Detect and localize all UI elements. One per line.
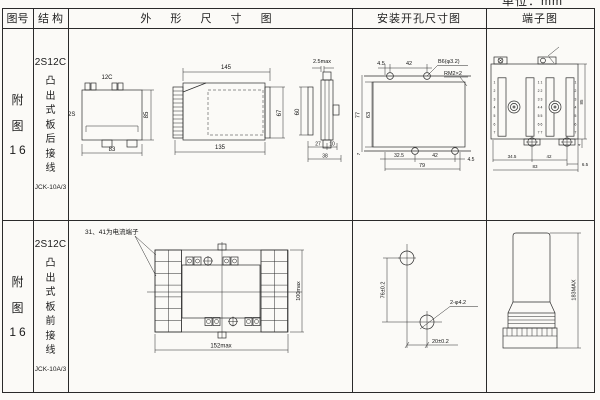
dimensions: 76±0.2 2-φ4.2 20±0.2: [381, 258, 479, 348]
structure-cell-row1: 2S12C 凸出式板后接线 JCK-10A/3: [33, 28, 68, 220]
install-drawing-front: 76±0.2 2-φ4.2 20±0.2: [352, 220, 486, 392]
dim-label: 7: [356, 152, 361, 155]
dim-label: 63: [366, 112, 372, 118]
cutout-plate: [364, 73, 471, 155]
outline-drawing-front: 31、41为电流端子 152max 100max: [68, 220, 352, 392]
hole-spec-label: 2-φ4.2: [450, 300, 466, 306]
dim-label: 135: [215, 145, 226, 151]
dim-label: 183MAX: [572, 279, 578, 300]
dim-label: 85: [144, 111, 150, 118]
row-number: 2 2: [538, 89, 543, 93]
row-number: 2: [575, 89, 577, 93]
row-number: 5: [494, 114, 496, 118]
row-number: 3 3: [538, 97, 543, 101]
holes: [382, 244, 442, 348]
row-number: 4 4: [538, 106, 543, 110]
header-structure: 结 构: [33, 8, 68, 28]
row-number: 1: [575, 81, 577, 85]
terminal-drawing-rear: 1 2 3 4 5 6 7 1 1 2 2 3 3 4 4 5 5 6 6 7 …: [486, 28, 594, 220]
mount-type: 凸出式板前接线: [45, 257, 57, 359]
dim-label: 42: [432, 153, 438, 159]
outline-drawing-rear: 12C 2S 85 83 145 135 67: [68, 28, 352, 220]
header-install: 安装开孔尺寸图: [352, 8, 486, 28]
dim-label: 4.5: [377, 61, 385, 67]
row-number: 6: [575, 122, 577, 126]
type-code: JCK-10A/3: [35, 366, 66, 373]
header-outline: 外 形 尺 寸 图: [68, 8, 352, 28]
fig-char: 图: [11, 299, 23, 316]
fig-char: 图: [11, 117, 23, 134]
dim-label: 152max: [210, 344, 231, 350]
dim-label: 145: [221, 65, 232, 71]
note: 31、41为电流端子: [85, 227, 156, 276]
type-code: JCK-10A/3: [35, 184, 66, 191]
row-number: 1: [494, 81, 496, 85]
dim-label: 42: [546, 154, 552, 159]
dim-label: 67: [277, 109, 283, 116]
dim-label: 2S: [68, 112, 75, 118]
fig-char: 附: [11, 273, 23, 290]
dim-label: 4: [578, 144, 582, 146]
dim-label: 20±0.2: [432, 339, 449, 345]
row-number: 7 7: [538, 131, 543, 135]
row-number: 5: [575, 114, 577, 118]
row-number: 1 1: [538, 81, 543, 85]
row-number: 3: [575, 97, 577, 101]
dim-label: 10: [329, 142, 335, 148]
mount-type: 凸出式板后接线: [45, 75, 57, 177]
install-drawing-rear: 4.5 42 B6(φ3.2) RM2×2 77 63 7 32.5 42 4.…: [352, 28, 486, 220]
row-number: 7: [575, 131, 577, 135]
fig-no-cell-row2: 附 图 16: [2, 220, 33, 392]
model-code: 2S12C: [35, 239, 67, 250]
dimensions: 152max 100max: [155, 250, 304, 353]
row-number: 4: [494, 106, 496, 110]
terminal-drawing-front: 183MAX: [486, 220, 594, 392]
dim-label: 60: [295, 108, 301, 115]
dim-label: 83: [532, 164, 538, 169]
dim-label: 32.5: [394, 153, 404, 159]
row-number: 3: [494, 97, 496, 101]
header-fig-no: 图号: [2, 8, 33, 28]
dim-label: 83: [109, 147, 116, 153]
dim-label: 100max: [296, 281, 302, 301]
header-terminal: 端子图: [486, 8, 594, 28]
dim-label: 6.5: [582, 162, 589, 167]
dim-label: 76±0.2: [381, 282, 387, 299]
structure-cell-row2: 2S12C 凸出式板前接线 JCK-10A/3: [33, 220, 68, 392]
row-number: 5 5: [538, 114, 543, 118]
front-view: 12C 2S 85 83: [68, 75, 154, 156]
row-number: 7: [494, 131, 496, 135]
dim-label: 77: [356, 112, 362, 118]
dim-label: 38: [322, 154, 328, 160]
fig-number: 16: [6, 143, 28, 157]
row-number: 6 6: [538, 122, 543, 126]
side-view: 145 135 67: [173, 65, 285, 155]
dim-label: 42: [406, 61, 412, 67]
relay-side-view: [503, 233, 557, 348]
fig-no-cell-row1: 附 图 16: [2, 28, 33, 220]
dim-label: 2.5max: [313, 59, 331, 65]
dim-label: 27: [315, 142, 321, 148]
dim-label: 12C: [101, 75, 113, 81]
row-number: 6: [494, 122, 496, 126]
model-code: 2S12C: [35, 57, 67, 68]
terminal-board: [147, 242, 302, 338]
dim-label: 34.5: [508, 154, 517, 159]
fig-number: 16: [6, 325, 28, 339]
dim-label: 85: [579, 99, 584, 105]
terminal-plate: [491, 47, 578, 148]
row-number: 2: [494, 89, 496, 93]
fig-char: 附: [11, 91, 23, 108]
dim-label: 79: [419, 163, 425, 169]
drawing-sheet: 单位：mm 图号 结 构 外 形 尺 寸 图 安装开孔尺寸图 端子图 附 图 1…: [0, 0, 600, 400]
row-number: 4: [575, 106, 577, 110]
dim-label: 4.5: [468, 157, 475, 163]
dimensions: 183MAX: [550, 233, 581, 348]
hole-spec-label: B6(φ3.2): [438, 59, 460, 65]
thread-spec-label: RM2×2: [444, 71, 462, 77]
current-terminal-note: 31、41为电流端子: [85, 227, 139, 236]
edge-view: 2.5max 60 27 10 38: [295, 59, 341, 162]
